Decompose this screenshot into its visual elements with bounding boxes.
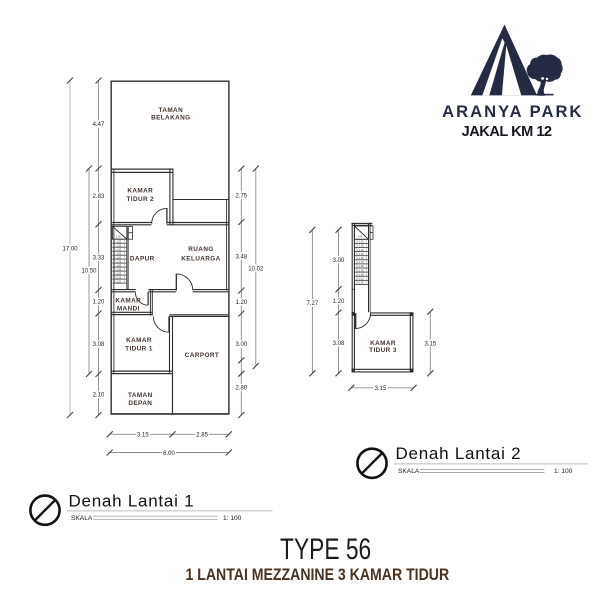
svg-text:SKALA: SKALA [398, 468, 420, 475]
svg-text:1: 100: 1: 100 [554, 468, 573, 475]
svg-text:+ 2.10: + 2.10 [357, 278, 364, 281]
svg-text:3.48: 3.48 [235, 254, 247, 260]
svg-text:3.00: 3.00 [333, 258, 345, 264]
svg-text:TIDUR 1: TIDUR 1 [125, 345, 153, 352]
svg-text:- 1.30: - 1.30 [115, 244, 122, 247]
svg-text:2.83: 2.83 [93, 194, 105, 200]
svg-text:+ 1.40: + 1.40 [357, 249, 364, 252]
svg-text:CARPORT: CARPORT [185, 352, 219, 359]
svg-text:- 2.00: - 2.00 [115, 272, 122, 275]
svg-text:TAMAN: TAMAN [158, 107, 183, 114]
svg-text:TAMAN: TAMAN [128, 392, 153, 399]
svg-text:3.15: 3.15 [375, 386, 387, 392]
svg-text:- 1.00: - 1.00 [356, 236, 363, 239]
svg-text:- 1.90: - 1.90 [115, 268, 122, 271]
svg-text:SKALA: SKALA [71, 515, 93, 522]
svg-text:- 1.20: - 1.20 [115, 240, 122, 243]
svg-text:- 1.60: - 1.60 [115, 256, 122, 259]
svg-text:3.08: 3.08 [333, 341, 345, 347]
svg-text:2.80: 2.80 [235, 386, 247, 392]
svg-text:+ 1.60: + 1.60 [357, 257, 364, 260]
svg-text:10.02: 10.02 [248, 266, 264, 272]
svg-text:1: 100: 1: 100 [223, 515, 242, 522]
svg-text:KAMAR: KAMAR [127, 188, 153, 195]
svg-text:KAMAR: KAMAR [115, 297, 141, 304]
svg-text:2.75: 2.75 [235, 193, 247, 199]
svg-text:2.85: 2.85 [196, 433, 208, 439]
svg-text:3.15: 3.15 [424, 341, 436, 347]
svg-text:RUANG: RUANG [188, 246, 213, 253]
svg-text:ARANYA PARK: ARANYA PARK [442, 102, 583, 121]
svg-text:- 2.10: - 2.10 [115, 276, 122, 279]
svg-text:JAKAL KM 12: JAKAL KM 12 [462, 124, 552, 140]
svg-text:4.47: 4.47 [93, 122, 105, 128]
svg-text:TIDUR 3: TIDUR 3 [369, 347, 397, 354]
svg-text:TIDUR 2: TIDUR 2 [126, 196, 154, 203]
svg-text:+ 1.30: + 1.30 [357, 245, 364, 248]
svg-text:DEPAN: DEPAN [128, 400, 152, 407]
svg-text:+ 1.20: + 1.20 [357, 241, 364, 244]
svg-text:KAMAR: KAMAR [370, 340, 396, 347]
svg-text:+ 1.70: + 1.70 [357, 261, 364, 264]
svg-text:6.00: 6.00 [163, 451, 175, 457]
svg-text:+ 1.90: + 1.90 [357, 269, 364, 272]
svg-text:17.00: 17.00 [62, 246, 78, 252]
svg-text:- 1.80: - 1.80 [115, 264, 122, 267]
svg-text:+ 2.00: + 2.00 [357, 273, 364, 276]
svg-text:1.20: 1.20 [93, 300, 105, 306]
svg-text:10.50: 10.50 [81, 268, 97, 274]
svg-text:+ 2.20: + 2.20 [357, 282, 364, 285]
svg-text:KELUARGA: KELUARGA [181, 256, 220, 263]
svg-text:3.33: 3.33 [93, 256, 105, 262]
svg-text:3.08: 3.08 [93, 342, 105, 348]
svg-text:- 1.70: - 1.70 [115, 260, 122, 263]
svg-text:1.20: 1.20 [333, 299, 345, 305]
svg-text:MANDI: MANDI [117, 305, 140, 312]
svg-text:7.27: 7.27 [307, 301, 319, 307]
svg-text:3.00: 3.00 [235, 342, 247, 348]
svg-text:Denah Lantai 2: Denah Lantai 2 [396, 444, 522, 463]
svg-text:+ 1.80: + 1.80 [357, 265, 364, 268]
svg-text:- 1.50: - 1.50 [115, 252, 122, 255]
svg-text:3.15: 3.15 [137, 433, 149, 439]
svg-text:1.20: 1.20 [235, 300, 247, 306]
svg-text:TYPE 56: TYPE 56 [280, 532, 371, 565]
svg-text:- 2.20: - 2.20 [115, 280, 122, 283]
svg-text:2.10: 2.10 [93, 393, 105, 399]
svg-text:+ 1.50: + 1.50 [357, 253, 364, 256]
svg-text:- 1.00: - 1.00 [115, 236, 122, 239]
svg-text:KAMAR: KAMAR [126, 337, 152, 344]
svg-text:- 1.40: - 1.40 [115, 248, 122, 251]
svg-text:DAPUR: DAPUR [130, 256, 155, 263]
svg-text:1 LANTAI MEZZANINE 3 KAMAR TID: 1 LANTAI MEZZANINE 3 KAMAR TIDUR [185, 566, 449, 584]
svg-text:BELAKANG: BELAKANG [151, 115, 190, 122]
svg-text:Denah Lantai 1: Denah Lantai 1 [69, 491, 195, 510]
